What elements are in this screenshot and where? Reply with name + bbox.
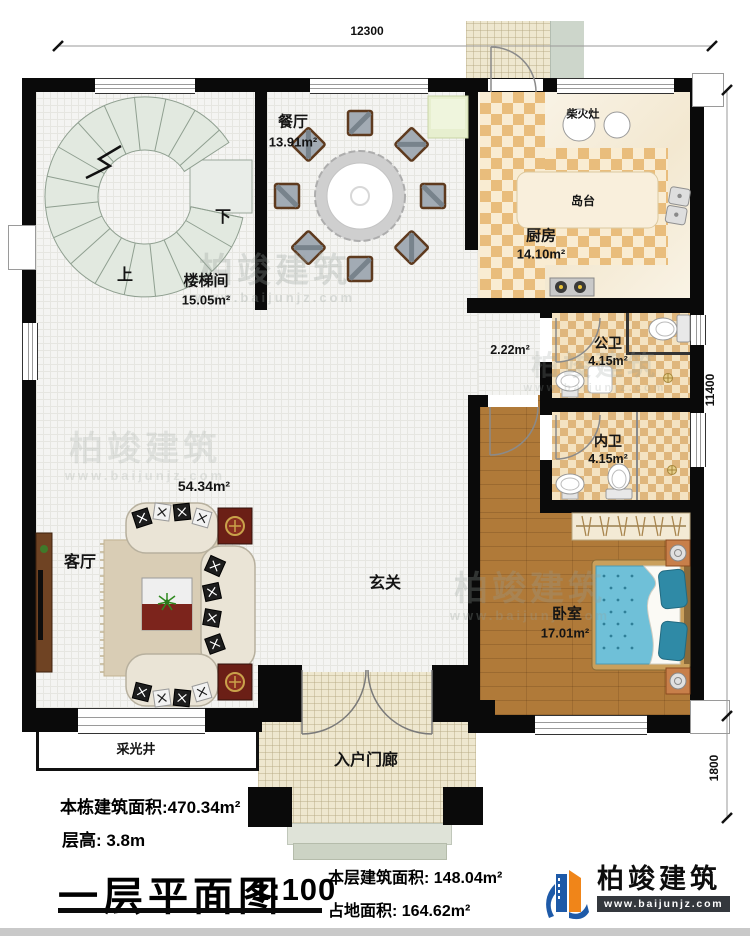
kitchen-range [550,278,594,296]
bottom-bar [0,928,750,936]
bathroom-fixtures [556,315,690,499]
label-porch: 入户门廊 [334,753,398,769]
pubbath-sink [556,371,584,397]
label-public-bath: 公卫 [594,336,622,350]
kitchen-fixtures [517,109,691,296]
wood-stove-burner-2 [604,112,630,138]
area-bedroom: 17.01m² [541,627,589,640]
logo-name: 柏竣建筑 [597,866,730,893]
plan-scale: 1:100 [252,872,336,908]
tv-cabinet [36,533,52,672]
living-room-furniture [36,503,255,707]
floor-plan-page: 柏竣建筑 www.baijunjz.com 柏竣建筑 www.baijunjz.… [0,0,750,936]
area-public-bath: 4.15m² [588,355,628,368]
label-private-bath: 内卫 [594,434,622,448]
wardrobe [572,513,690,540]
label-stairs-up: 上 [117,268,133,284]
label-light-well: 采光井 [116,743,155,756]
floor-area-text: 本层建筑面积: 148.04m² [328,864,502,888]
back-door [491,47,536,92]
nightstand-1 [666,540,690,566]
plant [40,545,48,553]
area-dining: 13.91m² [269,136,317,149]
nightstand-2 [666,668,690,694]
logo-url: www.baijunjz.com [597,896,730,912]
privbath-toilet [606,464,632,499]
dim-height-main: 11400 [704,374,716,407]
label-foyer: 玄关 [369,576,401,592]
side-table-1 [218,508,252,544]
area-kitchen: 14.10m² [517,248,565,261]
dim-height-porch: 1800 [708,755,720,782]
bed [592,560,690,670]
area-stairwell: 15.05m² [182,294,230,307]
label-living-room: 客厅 [64,555,96,571]
kitchen-sink [665,186,691,225]
pubbath-cabinet [588,366,612,393]
label-wood-stove: 柴火灶 [567,110,600,121]
spiral-staircase [45,97,252,297]
label-bedroom: 卧室 [552,607,582,622]
label-island: 岛台 [571,195,595,207]
total-area-text: 本栋建筑面积:470.34m² [60,793,240,818]
side-table-2 [218,664,252,700]
label-dining: 餐厅 [278,115,308,130]
label-kitchen: 厨房 [526,229,556,244]
coffee-table [142,578,192,630]
dining-cabinet [428,96,468,138]
label-stairs-down: 下 [215,210,231,226]
pubbath-toilet [649,315,690,342]
label-stairwell: 楼梯间 [183,274,228,289]
logo-building-icon [543,864,591,926]
area-private-bath: 4.15m² [588,453,628,466]
entrance-double-door [302,670,432,734]
bedroom-door [490,407,538,455]
dim-width: 12300 [350,25,383,37]
tv [38,570,43,640]
area-corridor: 2.22m² [490,344,530,357]
privbath-floor-drain [668,466,677,475]
plan-title: 一层平面图 [58,864,283,922]
area-living-room: 54.34m² [178,479,230,493]
rug-fringe [100,544,104,672]
privbath-sink [556,474,584,499]
bedroom-furniture [490,407,690,694]
floor-height-text: 层高: 3.8m [62,826,145,851]
land-area-text: 占地面积: 164.62m² [328,897,470,921]
company-logo: 柏竣建筑 www.baijunjz.com [543,864,743,926]
pubbath-floor-drain [664,374,673,383]
title-underline [58,908,322,913]
